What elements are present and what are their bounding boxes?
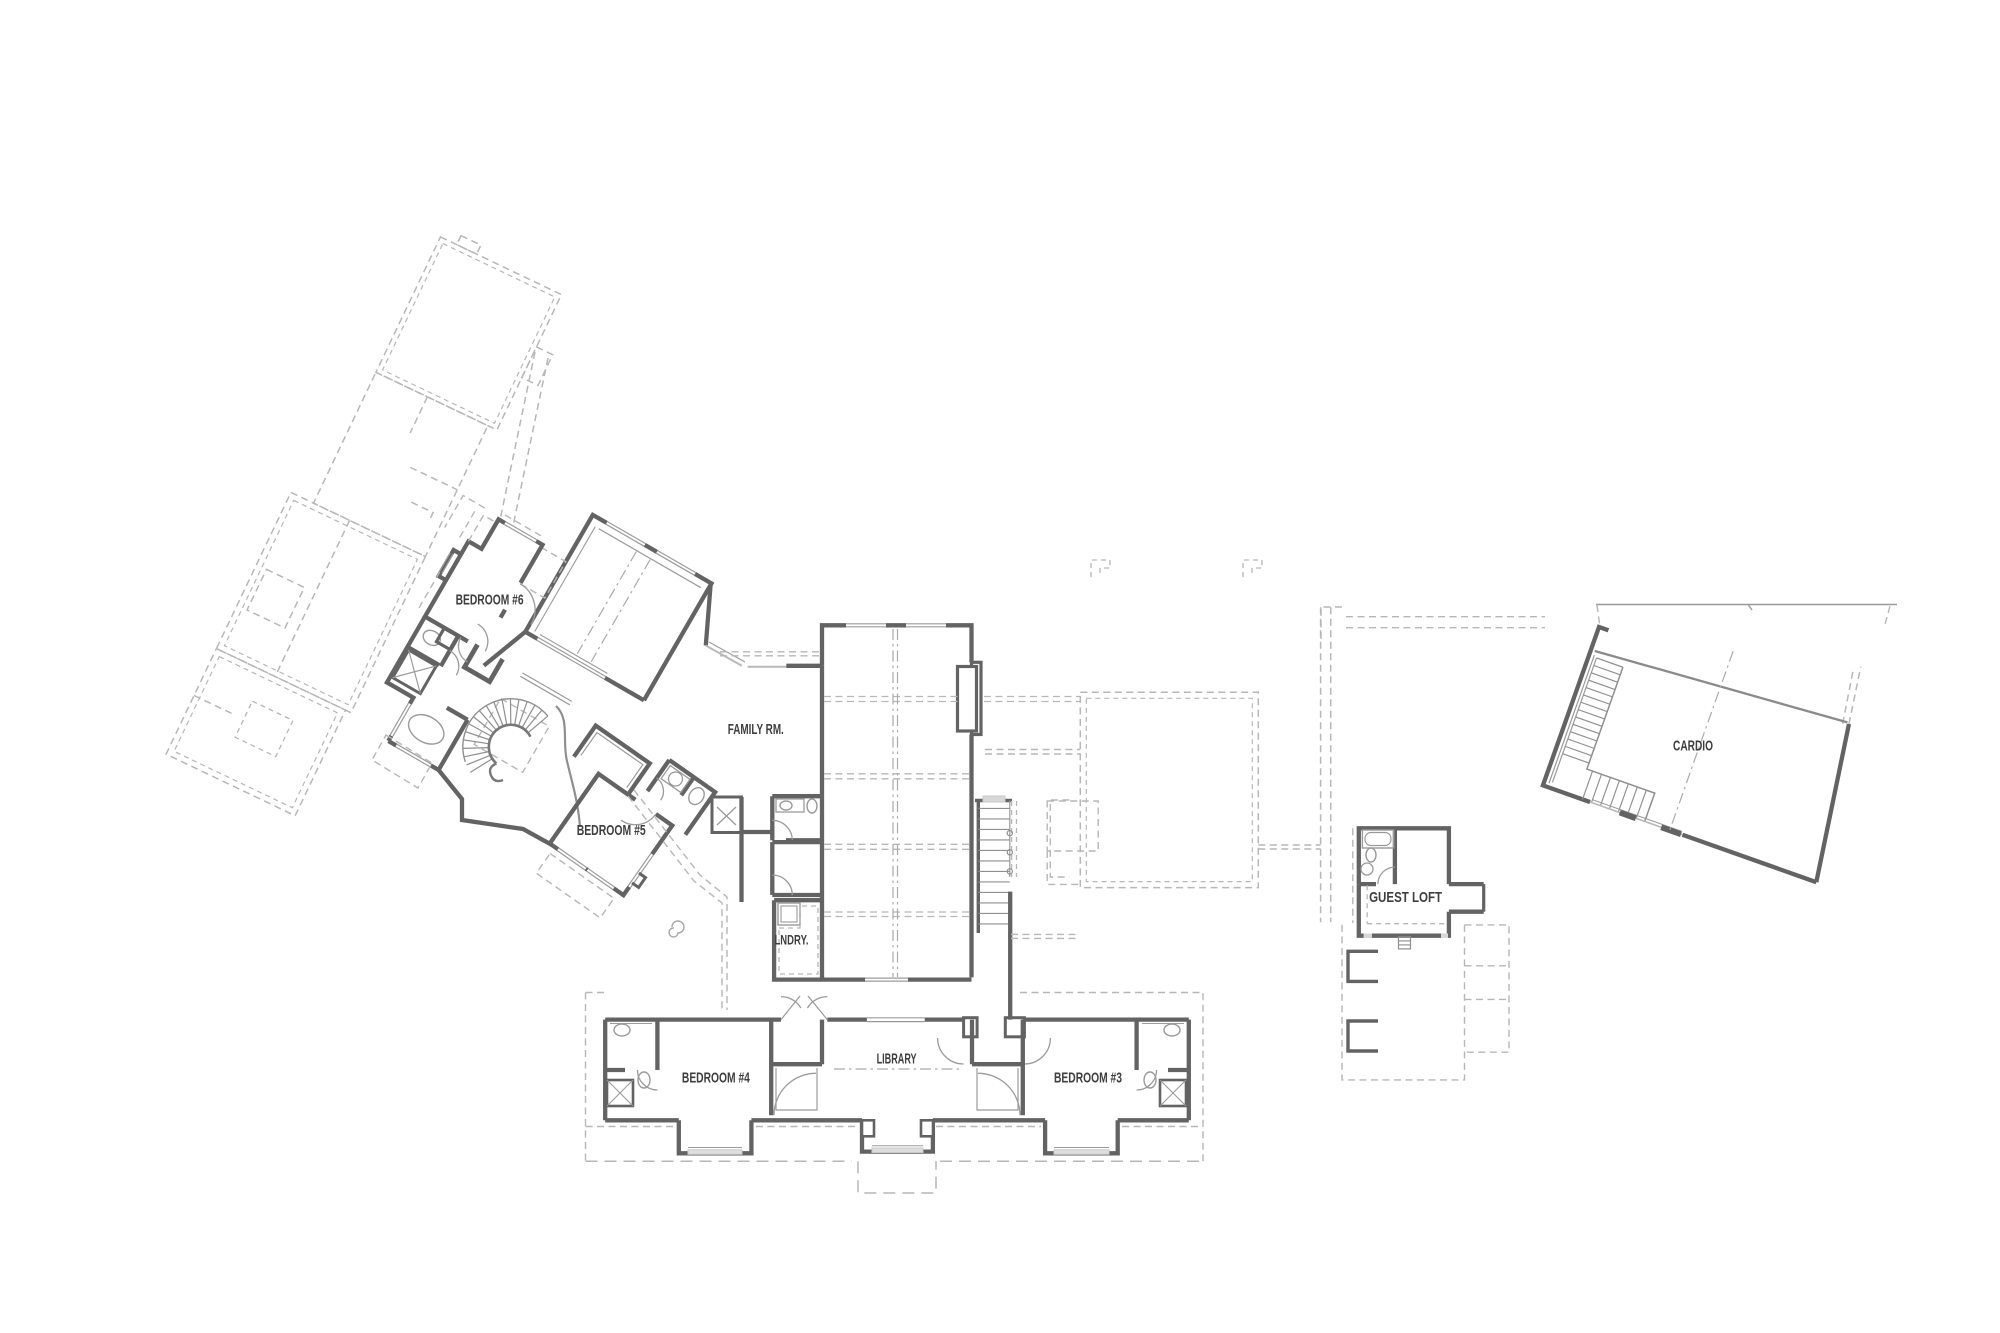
- svg-text:LNDRY.: LNDRY.: [775, 931, 809, 947]
- svg-text:CARDIO: CARDIO: [1673, 737, 1713, 754]
- svg-text:BEDROOM #4: BEDROOM #4: [682, 1069, 750, 1086]
- svg-text:GUEST LOFT: GUEST LOFT: [1369, 889, 1442, 906]
- svg-text:LIBRARY: LIBRARY: [877, 1051, 917, 1068]
- svg-text:BEDROOM #6: BEDROOM #6: [456, 592, 524, 609]
- svg-text:BEDROOM #3: BEDROOM #3: [1054, 1069, 1122, 1086]
- svg-text:BEDROOM #5: BEDROOM #5: [577, 822, 646, 839]
- svg-text:FAMILY RM.: FAMILY RM.: [728, 721, 784, 738]
